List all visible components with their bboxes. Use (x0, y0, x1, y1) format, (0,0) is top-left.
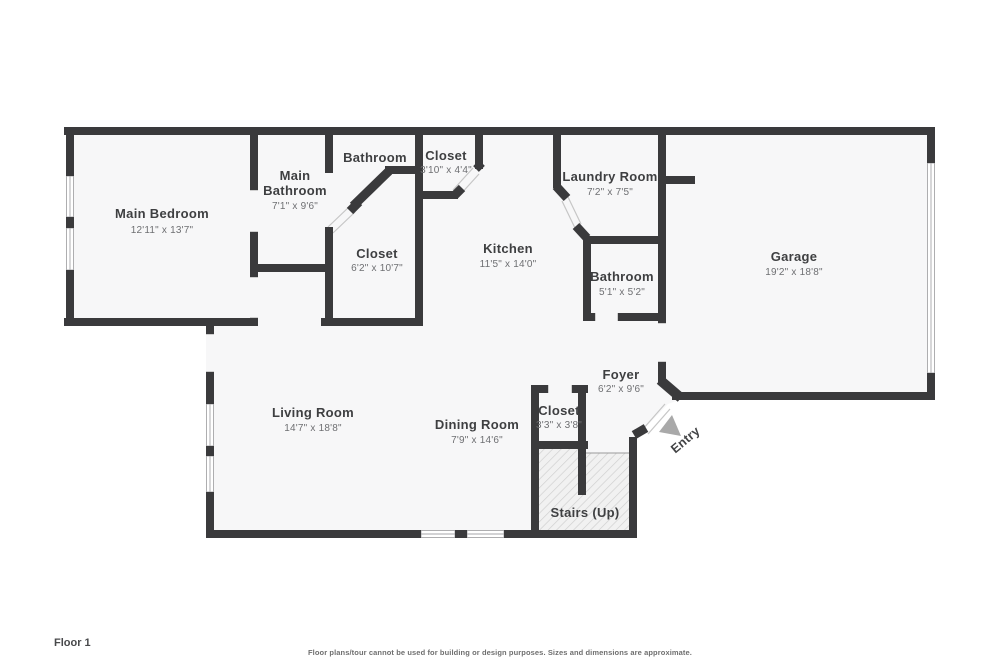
room-label-kitchen: Kitchen (483, 241, 533, 256)
room-label-bathroom-small: Bathroom (590, 269, 654, 284)
window (467, 531, 504, 538)
room-label-main-bedroom: Main Bedroom (115, 206, 209, 221)
room-label-garage: Garage (771, 249, 818, 264)
room-dims-closet-foyer: 3'3" x 3'8" (536, 420, 582, 431)
room-label-laundry: Laundry Room (562, 169, 657, 184)
room-dims-closet-top: 3'10" x 4'4" (420, 165, 472, 176)
room-dims-living-room: 14'7" x 18'8" (284, 423, 342, 434)
disclaimer-text: Floor plans/tour cannot be used for buil… (0, 648, 1000, 657)
window (207, 456, 214, 492)
room-label-dining-room: Dining Room (435, 417, 519, 432)
floor-plan-canvas: Main Bedroom 12'11" x 13'7" Main Bathroo… (0, 0, 1000, 667)
room-label-stairs: Stairs (Up) (550, 505, 619, 520)
room-label-main-bathroom-line1: Main (280, 168, 311, 183)
room-dims-main-bathroom: 7'1" x 9'6" (272, 201, 318, 212)
entry-marker: Entry (659, 415, 703, 456)
room-label-foyer: Foyer (603, 367, 640, 382)
room-dims-foyer: 6'2" x 9'6" (598, 384, 644, 395)
garage-door-opening (928, 163, 935, 373)
room-label-closet-hall: Closet (356, 246, 398, 261)
room-label-closet-foyer: Closet (538, 403, 580, 418)
floor-plan-page: Main Bedroom 12'11" x 13'7" Main Bathroo… (0, 0, 1000, 667)
window (67, 228, 74, 270)
room-label-closet-top: Closet (425, 148, 467, 163)
room-dims-garage: 19'2" x 18'8" (765, 267, 823, 278)
room-dims-main-bedroom: 12'11" x 13'7" (131, 225, 194, 236)
room-floor-fills (66, 127, 935, 538)
window (67, 176, 74, 217)
room-label-main-bathroom-line2: Bathroom (263, 183, 327, 198)
room-dims-closet-hall: 6'2" x 10'7" (351, 263, 403, 274)
room-label-living-room: Living Room (272, 405, 354, 420)
window (207, 404, 214, 446)
room-dims-laundry: 7'2" x 7'5" (587, 187, 633, 198)
room-dims-bathroom-small: 5'1" x 5'2" (599, 287, 645, 298)
room-label-bathroom-top: Bathroom (343, 150, 407, 165)
room-dims-kitchen: 11'5" x 14'0" (480, 259, 537, 270)
window (421, 531, 455, 538)
room-dims-dining-room: 7'9" x 14'6" (451, 435, 503, 446)
